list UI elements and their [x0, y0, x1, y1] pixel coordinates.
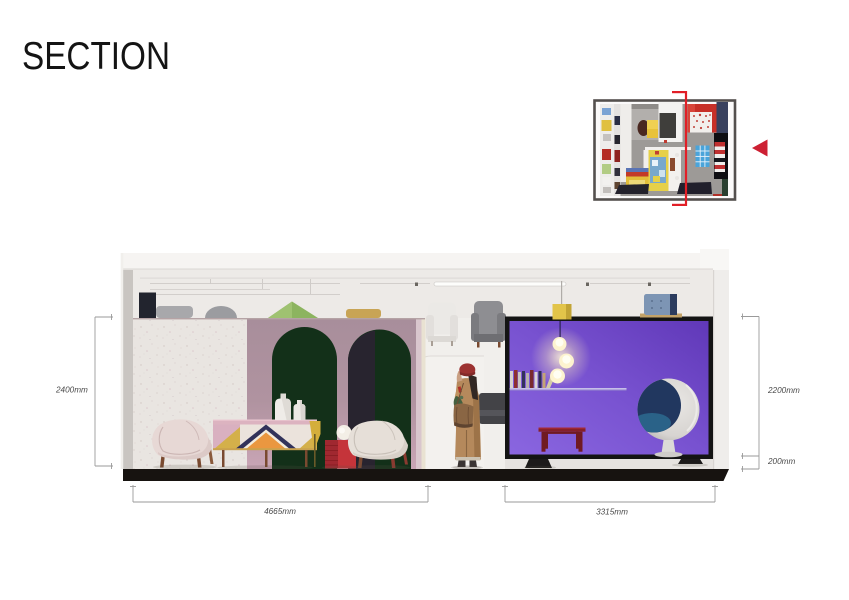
svg-text:2200mm: 2200mm: [767, 386, 800, 395]
svg-text:4665mm: 4665mm: [264, 507, 296, 516]
svg-text:2400mm: 2400mm: [55, 386, 88, 395]
svg-text:200mm: 200mm: [767, 457, 795, 466]
svg-text:SECTION: SECTION: [22, 35, 170, 78]
svg-text:3315mm: 3315mm: [596, 508, 628, 517]
